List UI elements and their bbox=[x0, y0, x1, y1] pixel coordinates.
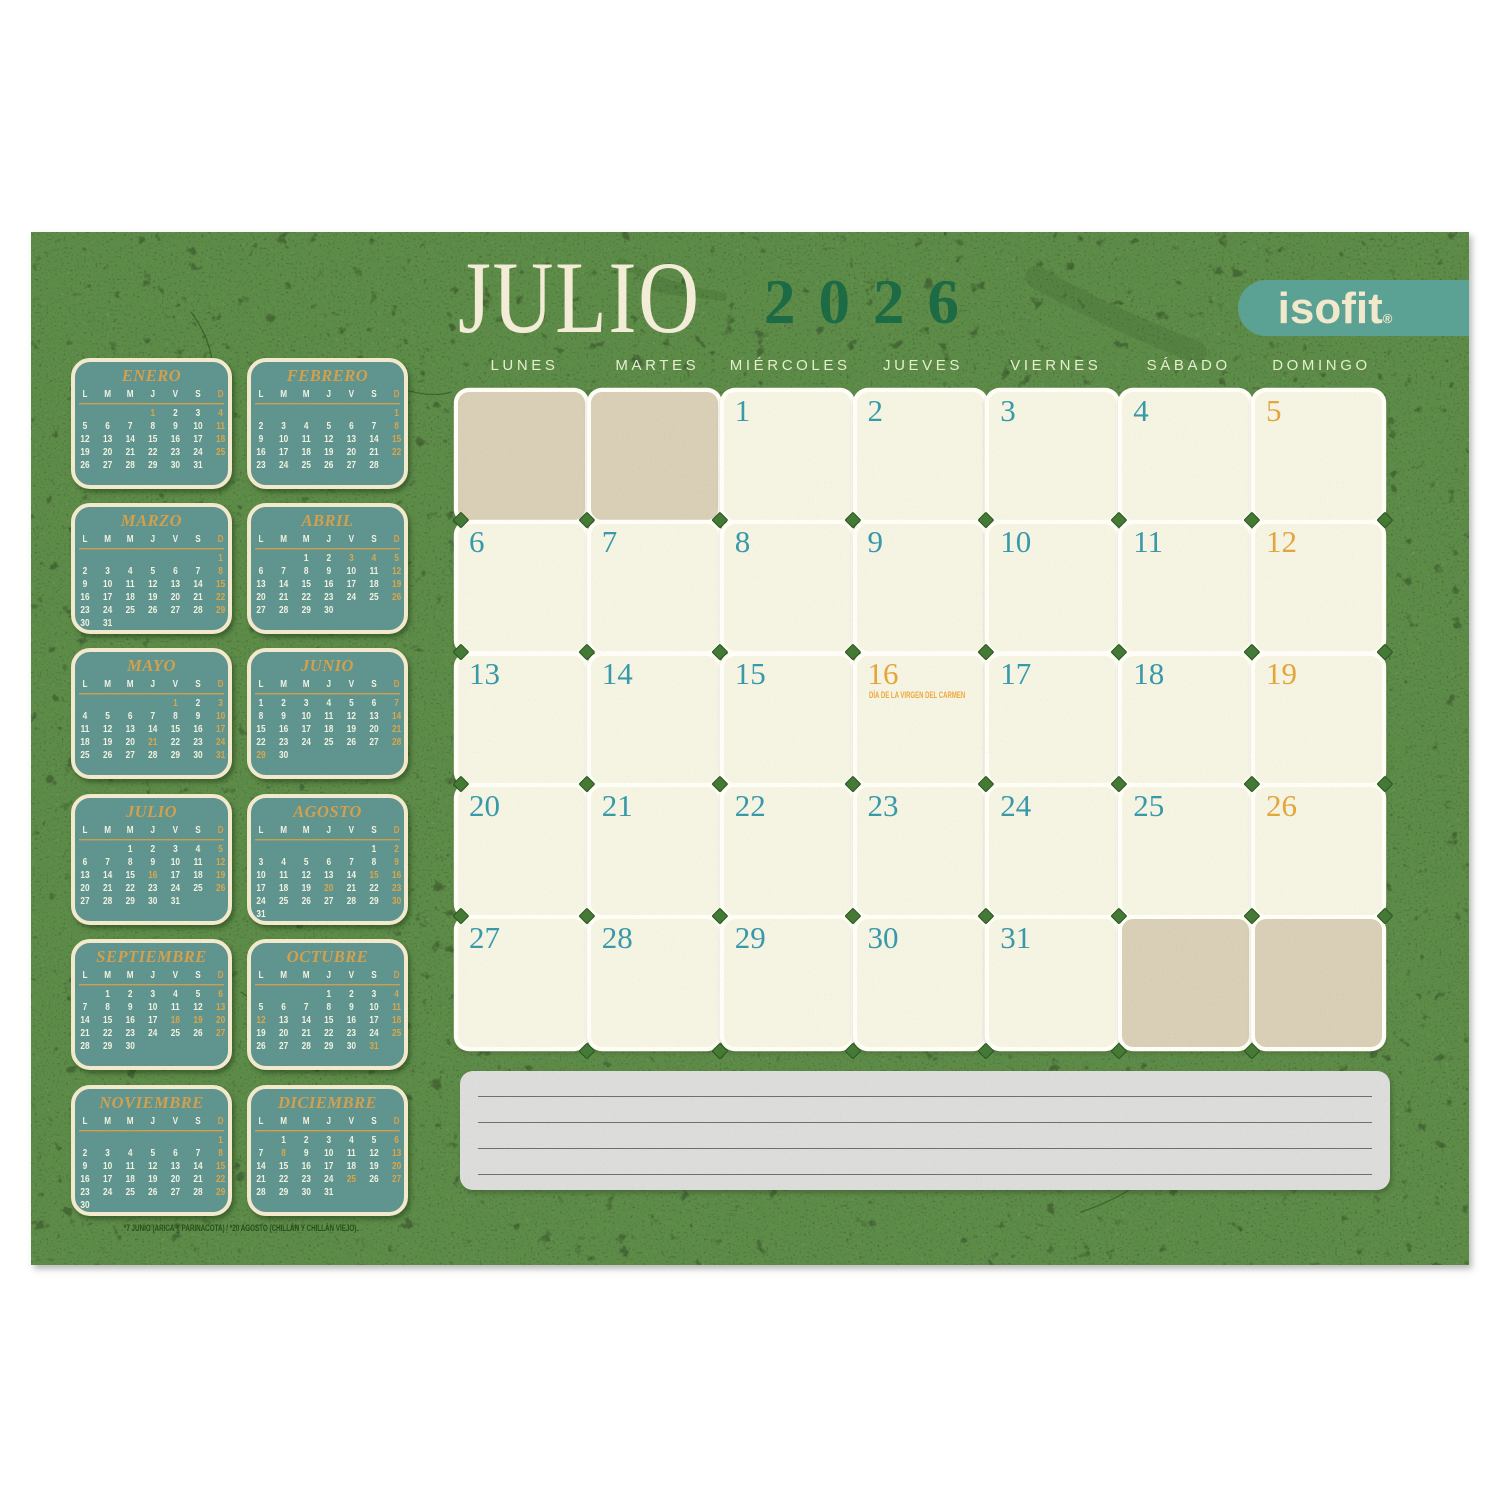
svg-text:JUNIO: JUNIO bbox=[300, 656, 354, 675]
svg-text:10: 10 bbox=[369, 1001, 378, 1012]
svg-text:13: 13 bbox=[392, 1147, 401, 1158]
svg-text:28: 28 bbox=[193, 1186, 202, 1197]
svg-text:30: 30 bbox=[193, 750, 202, 761]
svg-text:20: 20 bbox=[171, 591, 180, 602]
svg-text:16: 16 bbox=[256, 446, 265, 457]
svg-text:27: 27 bbox=[171, 604, 180, 615]
svg-text:15: 15 bbox=[171, 724, 180, 735]
svg-text:29: 29 bbox=[216, 1186, 225, 1197]
svg-text:28: 28 bbox=[126, 459, 135, 470]
svg-text:3: 3 bbox=[173, 843, 178, 854]
svg-text:31: 31 bbox=[256, 908, 265, 919]
svg-text:6: 6 bbox=[105, 420, 110, 431]
svg-text:6: 6 bbox=[128, 711, 133, 722]
svg-text:30: 30 bbox=[171, 459, 180, 470]
svg-text:L: L bbox=[83, 388, 88, 399]
svg-text:23: 23 bbox=[347, 1027, 356, 1038]
svg-text:3: 3 bbox=[218, 698, 223, 709]
svg-text:26: 26 bbox=[324, 459, 333, 470]
svg-text:9: 9 bbox=[259, 433, 264, 444]
svg-text:26: 26 bbox=[193, 1027, 202, 1038]
svg-text:17: 17 bbox=[216, 724, 225, 735]
svg-text:31: 31 bbox=[324, 1186, 333, 1197]
svg-text:26: 26 bbox=[103, 750, 112, 761]
svg-text:28: 28 bbox=[103, 895, 112, 906]
svg-text:31: 31 bbox=[216, 750, 225, 761]
svg-text:19: 19 bbox=[148, 591, 157, 602]
svg-text:13: 13 bbox=[126, 724, 135, 735]
svg-text:M: M bbox=[104, 679, 111, 690]
svg-text:19: 19 bbox=[369, 1160, 378, 1171]
svg-text:15: 15 bbox=[302, 578, 311, 589]
svg-text:ENERO: ENERO bbox=[121, 366, 181, 385]
svg-text:7: 7 bbox=[150, 711, 155, 722]
svg-text:21: 21 bbox=[148, 737, 157, 748]
svg-text:M: M bbox=[104, 533, 111, 544]
svg-text:9: 9 bbox=[83, 578, 88, 589]
svg-text:L: L bbox=[259, 969, 264, 980]
svg-text:7: 7 bbox=[259, 1147, 264, 1158]
svg-text:MAYO: MAYO bbox=[126, 656, 176, 675]
svg-text:M: M bbox=[127, 824, 134, 835]
svg-text:5: 5 bbox=[326, 420, 331, 431]
svg-text:25: 25 bbox=[193, 882, 202, 893]
svg-text:S: S bbox=[371, 1115, 376, 1126]
svg-text:5: 5 bbox=[150, 1147, 155, 1158]
svg-text:D: D bbox=[218, 533, 224, 544]
svg-text:8: 8 bbox=[326, 1001, 331, 1012]
svg-text:21: 21 bbox=[126, 446, 135, 457]
svg-text:23: 23 bbox=[171, 446, 180, 457]
svg-text:20: 20 bbox=[324, 882, 333, 893]
svg-text:5: 5 bbox=[394, 552, 399, 563]
svg-text:2: 2 bbox=[128, 988, 133, 999]
svg-text:8: 8 bbox=[218, 565, 223, 576]
svg-text:4: 4 bbox=[83, 711, 88, 722]
svg-text:28: 28 bbox=[80, 1040, 89, 1051]
svg-text:9: 9 bbox=[128, 1001, 133, 1012]
svg-text:30: 30 bbox=[347, 1040, 356, 1051]
svg-text:21: 21 bbox=[256, 1173, 265, 1184]
svg-text:14: 14 bbox=[347, 869, 356, 880]
svg-text:18: 18 bbox=[279, 882, 288, 893]
svg-text:15: 15 bbox=[216, 578, 225, 589]
svg-text:5: 5 bbox=[349, 698, 354, 709]
svg-text:3: 3 bbox=[196, 407, 201, 418]
svg-text:6: 6 bbox=[394, 1134, 399, 1145]
svg-text:22: 22 bbox=[103, 1027, 112, 1038]
svg-text:MARZO: MARZO bbox=[120, 511, 182, 530]
svg-text:S: S bbox=[371, 824, 376, 835]
svg-text:18: 18 bbox=[80, 737, 89, 748]
svg-text:24: 24 bbox=[148, 1027, 157, 1038]
svg-text:7: 7 bbox=[349, 856, 354, 867]
svg-text:17: 17 bbox=[347, 578, 356, 589]
svg-text:DICIEMBRE: DICIEMBRE bbox=[277, 1093, 377, 1112]
svg-text:10: 10 bbox=[216, 711, 225, 722]
svg-text:V: V bbox=[349, 824, 355, 835]
svg-text:8: 8 bbox=[173, 711, 178, 722]
svg-text:7: 7 bbox=[83, 1001, 88, 1012]
svg-text:FEBRERO: FEBRERO bbox=[286, 366, 368, 385]
svg-text:19: 19 bbox=[148, 1173, 157, 1184]
svg-text:22: 22 bbox=[216, 1173, 225, 1184]
svg-text:L: L bbox=[83, 824, 88, 835]
svg-text:J: J bbox=[327, 388, 332, 399]
svg-text:18: 18 bbox=[392, 1014, 401, 1025]
svg-text:L: L bbox=[259, 388, 264, 399]
svg-text:11: 11 bbox=[126, 578, 135, 589]
svg-text:15: 15 bbox=[216, 1160, 225, 1171]
svg-text:1: 1 bbox=[218, 552, 223, 563]
svg-text:14: 14 bbox=[193, 578, 202, 589]
svg-text:18: 18 bbox=[369, 578, 378, 589]
svg-text:2: 2 bbox=[281, 698, 286, 709]
svg-text:V: V bbox=[173, 1115, 179, 1126]
svg-text:7: 7 bbox=[196, 1147, 201, 1158]
svg-text:9: 9 bbox=[394, 856, 399, 867]
svg-text:13: 13 bbox=[256, 578, 265, 589]
svg-text:8: 8 bbox=[281, 1147, 286, 1158]
svg-text:5: 5 bbox=[105, 711, 110, 722]
svg-text:29: 29 bbox=[302, 604, 311, 615]
svg-text:28: 28 bbox=[347, 895, 356, 906]
svg-text:16: 16 bbox=[324, 578, 333, 589]
svg-text:24: 24 bbox=[369, 1027, 378, 1038]
svg-text:M: M bbox=[280, 824, 287, 835]
svg-text:7: 7 bbox=[128, 420, 133, 431]
svg-text:26: 26 bbox=[256, 1040, 265, 1051]
svg-text:17: 17 bbox=[256, 882, 265, 893]
svg-text:30: 30 bbox=[80, 1199, 89, 1210]
svg-text:J: J bbox=[151, 679, 156, 690]
svg-text:25: 25 bbox=[126, 1186, 135, 1197]
svg-text:AGOSTO: AGOSTO bbox=[292, 802, 362, 821]
svg-text:13: 13 bbox=[103, 433, 112, 444]
svg-text:D: D bbox=[218, 388, 224, 399]
svg-text:20: 20 bbox=[256, 591, 265, 602]
svg-text:23: 23 bbox=[324, 591, 333, 602]
svg-text:16: 16 bbox=[80, 1173, 89, 1184]
svg-text:24: 24 bbox=[256, 895, 265, 906]
svg-text:29: 29 bbox=[126, 895, 135, 906]
svg-text:10: 10 bbox=[256, 869, 265, 880]
svg-text:27: 27 bbox=[171, 1186, 180, 1197]
svg-text:M: M bbox=[280, 1115, 287, 1126]
svg-text:J: J bbox=[327, 824, 332, 835]
svg-text:S: S bbox=[195, 388, 200, 399]
svg-text:M: M bbox=[280, 969, 287, 980]
svg-text:30: 30 bbox=[279, 750, 288, 761]
svg-text:11: 11 bbox=[216, 420, 225, 431]
svg-text:21: 21 bbox=[193, 1173, 202, 1184]
svg-text:28: 28 bbox=[279, 604, 288, 615]
svg-text:22: 22 bbox=[148, 446, 157, 457]
svg-text:22: 22 bbox=[302, 591, 311, 602]
svg-text:1: 1 bbox=[105, 988, 110, 999]
svg-text:4: 4 bbox=[218, 407, 223, 418]
svg-text:13: 13 bbox=[216, 1001, 225, 1012]
svg-text:6: 6 bbox=[173, 1147, 178, 1158]
svg-text:20: 20 bbox=[80, 882, 89, 893]
svg-text:31: 31 bbox=[193, 459, 202, 470]
svg-text:20: 20 bbox=[103, 446, 112, 457]
svg-text:26: 26 bbox=[369, 1173, 378, 1184]
svg-text:18: 18 bbox=[216, 433, 225, 444]
svg-text:22: 22 bbox=[279, 1173, 288, 1184]
svg-text:5: 5 bbox=[259, 1001, 264, 1012]
svg-text:1: 1 bbox=[326, 988, 331, 999]
svg-text:14: 14 bbox=[369, 433, 378, 444]
svg-text:14: 14 bbox=[279, 578, 288, 589]
svg-text:25: 25 bbox=[392, 1027, 401, 1038]
svg-text:18: 18 bbox=[193, 869, 202, 880]
svg-text:J: J bbox=[327, 679, 332, 690]
svg-text:M: M bbox=[104, 1115, 111, 1126]
svg-text:18: 18 bbox=[324, 724, 333, 735]
svg-text:17: 17 bbox=[148, 1014, 157, 1025]
svg-text:17: 17 bbox=[171, 869, 180, 880]
svg-text:D: D bbox=[394, 824, 400, 835]
svg-text:26: 26 bbox=[148, 1186, 157, 1197]
svg-text:9: 9 bbox=[304, 1147, 309, 1158]
svg-text:29: 29 bbox=[171, 750, 180, 761]
svg-text:30: 30 bbox=[148, 895, 157, 906]
svg-text:J: J bbox=[151, 388, 156, 399]
svg-text:2: 2 bbox=[83, 1147, 88, 1158]
svg-text:3: 3 bbox=[281, 420, 286, 431]
svg-text:19: 19 bbox=[193, 1014, 202, 1025]
svg-text:16: 16 bbox=[193, 724, 202, 735]
svg-text:D: D bbox=[218, 679, 224, 690]
svg-text:J: J bbox=[327, 969, 332, 980]
svg-text:3: 3 bbox=[372, 988, 377, 999]
svg-text:3: 3 bbox=[105, 565, 110, 576]
svg-text:19: 19 bbox=[216, 869, 225, 880]
svg-text:10: 10 bbox=[324, 1147, 333, 1158]
svg-text:ABRIL: ABRIL bbox=[300, 511, 353, 530]
svg-text:9: 9 bbox=[349, 1001, 354, 1012]
svg-text:19: 19 bbox=[302, 882, 311, 893]
svg-text:7: 7 bbox=[372, 420, 377, 431]
svg-text:25: 25 bbox=[80, 750, 89, 761]
svg-text:11: 11 bbox=[347, 1147, 356, 1158]
svg-text:M: M bbox=[127, 388, 134, 399]
svg-text:23: 23 bbox=[302, 1173, 311, 1184]
svg-text:14: 14 bbox=[148, 724, 157, 735]
svg-text:15: 15 bbox=[324, 1014, 333, 1025]
svg-text:D: D bbox=[394, 679, 400, 690]
svg-text:D: D bbox=[394, 533, 400, 544]
svg-text:10: 10 bbox=[103, 578, 112, 589]
svg-text:23: 23 bbox=[148, 882, 157, 893]
svg-text:25: 25 bbox=[171, 1027, 180, 1038]
svg-text:M: M bbox=[303, 969, 310, 980]
svg-text:D: D bbox=[394, 969, 400, 980]
svg-text:J: J bbox=[151, 533, 156, 544]
svg-text:21: 21 bbox=[369, 446, 378, 457]
svg-text:11: 11 bbox=[324, 711, 333, 722]
svg-text:28: 28 bbox=[302, 1040, 311, 1051]
svg-text:8: 8 bbox=[150, 420, 155, 431]
svg-text:M: M bbox=[127, 533, 134, 544]
svg-text:V: V bbox=[349, 533, 355, 544]
svg-text:31: 31 bbox=[103, 617, 112, 628]
svg-text:M: M bbox=[127, 969, 134, 980]
svg-text:26: 26 bbox=[302, 895, 311, 906]
svg-text:SEPTIEMBRE: SEPTIEMBRE bbox=[96, 947, 206, 966]
svg-text:8: 8 bbox=[218, 1147, 223, 1158]
svg-text:2: 2 bbox=[150, 843, 155, 854]
svg-text:11: 11 bbox=[171, 1001, 180, 1012]
svg-text:14: 14 bbox=[193, 1160, 202, 1171]
svg-text:D: D bbox=[218, 824, 224, 835]
svg-text:4: 4 bbox=[326, 698, 331, 709]
svg-text:24: 24 bbox=[171, 882, 180, 893]
svg-text:18: 18 bbox=[126, 1173, 135, 1184]
svg-text:S: S bbox=[371, 388, 376, 399]
svg-text:25: 25 bbox=[347, 1173, 356, 1184]
svg-text:11: 11 bbox=[279, 869, 288, 880]
svg-text:6: 6 bbox=[259, 565, 264, 576]
svg-text:8: 8 bbox=[105, 1001, 110, 1012]
svg-text:28: 28 bbox=[148, 750, 157, 761]
svg-text:22: 22 bbox=[256, 737, 265, 748]
svg-text:3: 3 bbox=[326, 1134, 331, 1145]
svg-text:27: 27 bbox=[256, 604, 265, 615]
svg-text:11: 11 bbox=[302, 433, 311, 444]
svg-text:21: 21 bbox=[193, 591, 202, 602]
svg-text:15: 15 bbox=[369, 869, 378, 880]
svg-text:V: V bbox=[173, 824, 179, 835]
svg-text:12: 12 bbox=[369, 1147, 378, 1158]
svg-text:26: 26 bbox=[347, 737, 356, 748]
svg-text:S: S bbox=[371, 679, 376, 690]
svg-text:1: 1 bbox=[394, 407, 399, 418]
svg-text:16: 16 bbox=[148, 869, 157, 880]
svg-text:12: 12 bbox=[148, 1160, 157, 1171]
svg-text:25: 25 bbox=[324, 737, 333, 748]
svg-text:4: 4 bbox=[372, 552, 377, 563]
svg-text:21: 21 bbox=[80, 1027, 89, 1038]
svg-text:25: 25 bbox=[369, 591, 378, 602]
svg-text:S: S bbox=[195, 679, 200, 690]
svg-text:3: 3 bbox=[304, 698, 309, 709]
svg-text:12: 12 bbox=[392, 565, 401, 576]
svg-text:15: 15 bbox=[392, 433, 401, 444]
svg-text:8: 8 bbox=[304, 565, 309, 576]
svg-text:23: 23 bbox=[80, 604, 89, 615]
svg-text:J: J bbox=[327, 533, 332, 544]
svg-text:V: V bbox=[349, 388, 355, 399]
svg-text:24: 24 bbox=[193, 446, 202, 457]
svg-text:2: 2 bbox=[394, 843, 399, 854]
svg-text:S: S bbox=[371, 533, 376, 544]
svg-text:S: S bbox=[195, 824, 200, 835]
svg-text:M: M bbox=[104, 824, 111, 835]
svg-text:7: 7 bbox=[105, 856, 110, 867]
svg-text:2: 2 bbox=[83, 565, 88, 576]
svg-text:16: 16 bbox=[126, 1014, 135, 1025]
svg-text:16: 16 bbox=[80, 591, 89, 602]
svg-text:22: 22 bbox=[392, 446, 401, 457]
svg-text:28: 28 bbox=[392, 737, 401, 748]
svg-text:10: 10 bbox=[148, 1001, 157, 1012]
svg-text:M: M bbox=[303, 679, 310, 690]
svg-text:24: 24 bbox=[103, 604, 112, 615]
svg-text:2: 2 bbox=[304, 1134, 309, 1145]
svg-text:19: 19 bbox=[392, 578, 401, 589]
svg-text:29: 29 bbox=[216, 604, 225, 615]
svg-text:23: 23 bbox=[80, 1186, 89, 1197]
svg-text:1: 1 bbox=[218, 1134, 223, 1145]
svg-text:L: L bbox=[259, 679, 264, 690]
svg-text:22: 22 bbox=[324, 1027, 333, 1038]
svg-text:26: 26 bbox=[392, 591, 401, 602]
svg-text:8: 8 bbox=[128, 856, 133, 867]
svg-text:23: 23 bbox=[392, 882, 401, 893]
svg-text:23: 23 bbox=[193, 737, 202, 748]
svg-text:M: M bbox=[127, 679, 134, 690]
svg-text:13: 13 bbox=[279, 1014, 288, 1025]
svg-text:12: 12 bbox=[256, 1014, 265, 1025]
svg-text:L: L bbox=[259, 533, 264, 544]
svg-text:5: 5 bbox=[372, 1134, 377, 1145]
svg-text:13: 13 bbox=[324, 869, 333, 880]
svg-text:4: 4 bbox=[349, 1134, 354, 1145]
svg-text:8: 8 bbox=[372, 856, 377, 867]
svg-text:10: 10 bbox=[279, 433, 288, 444]
svg-text:V: V bbox=[349, 1115, 355, 1126]
svg-text:6: 6 bbox=[326, 856, 331, 867]
svg-text:25: 25 bbox=[216, 446, 225, 457]
svg-text:16: 16 bbox=[392, 869, 401, 880]
svg-text:27: 27 bbox=[279, 1040, 288, 1051]
svg-text:22: 22 bbox=[171, 737, 180, 748]
svg-text:2: 2 bbox=[173, 407, 178, 418]
svg-text:1: 1 bbox=[304, 552, 309, 563]
svg-text:12: 12 bbox=[80, 433, 89, 444]
svg-text:18: 18 bbox=[347, 1160, 356, 1171]
svg-text:15: 15 bbox=[126, 869, 135, 880]
svg-text:24: 24 bbox=[279, 459, 288, 470]
svg-text:15: 15 bbox=[279, 1160, 288, 1171]
svg-text:S: S bbox=[371, 969, 376, 980]
svg-text:6: 6 bbox=[281, 1001, 286, 1012]
svg-text:M: M bbox=[303, 824, 310, 835]
svg-text:4: 4 bbox=[196, 843, 201, 854]
svg-text:V: V bbox=[349, 969, 355, 980]
svg-text:2: 2 bbox=[259, 420, 264, 431]
svg-text:J: J bbox=[151, 969, 156, 980]
svg-text:3: 3 bbox=[259, 856, 264, 867]
svg-text:4: 4 bbox=[128, 565, 133, 576]
svg-text:S: S bbox=[195, 1115, 200, 1126]
svg-text:23: 23 bbox=[256, 459, 265, 470]
svg-text:21: 21 bbox=[302, 1027, 311, 1038]
svg-text:29: 29 bbox=[103, 1040, 112, 1051]
svg-text:12: 12 bbox=[216, 856, 225, 867]
svg-text:14: 14 bbox=[256, 1160, 265, 1171]
svg-text:30: 30 bbox=[302, 1186, 311, 1197]
svg-text:M: M bbox=[104, 969, 111, 980]
svg-text:20: 20 bbox=[216, 1014, 225, 1025]
svg-text:12: 12 bbox=[103, 724, 112, 735]
svg-text:1: 1 bbox=[173, 698, 178, 709]
svg-text:20: 20 bbox=[347, 446, 356, 457]
svg-text:14: 14 bbox=[103, 869, 112, 880]
svg-text:5: 5 bbox=[196, 988, 201, 999]
